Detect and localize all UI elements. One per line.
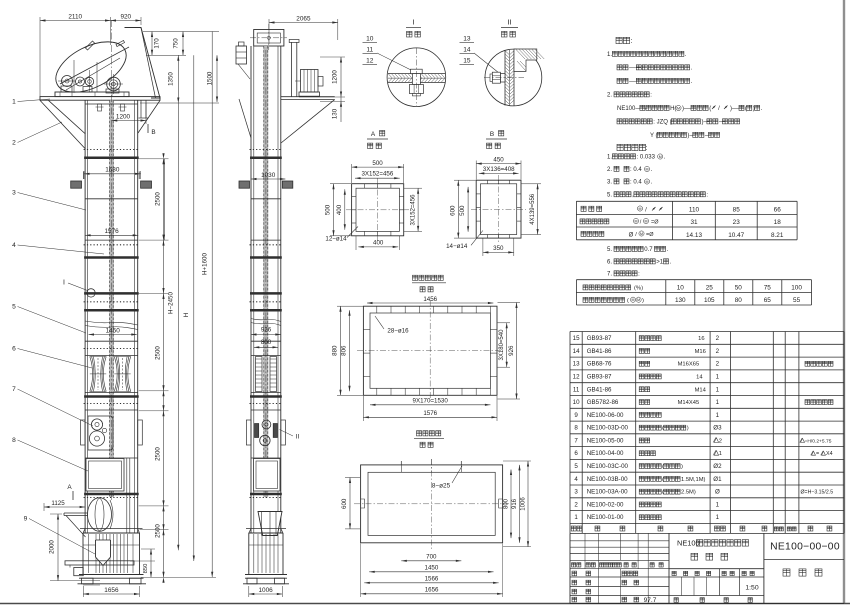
svg-text:NE100-03D-00: NE100-03D-00	[587, 425, 629, 432]
svg-text:6.: 6.	[607, 260, 612, 266]
svg-text:H(: H(	[670, 106, 676, 112]
svg-text:3.: 3.	[607, 180, 612, 186]
svg-text:1450: 1450	[106, 327, 121, 334]
svg-text:850: 850	[143, 564, 149, 574]
svg-text:14: 14	[573, 348, 580, 355]
svg-text:1030: 1030	[261, 172, 276, 179]
svg-text:M14: M14	[695, 387, 707, 393]
svg-text:750: 750	[173, 38, 180, 49]
svg-text:6: 6	[574, 450, 578, 457]
svg-text:1: 1	[716, 374, 720, 381]
svg-text:2065: 2065	[296, 15, 311, 22]
svg-text:55: 55	[793, 297, 801, 304]
svg-text:2000: 2000	[49, 540, 56, 554]
svg-text:: 0.4: : 0.4	[630, 180, 642, 186]
svg-text:12−ø14: 12−ø14	[325, 235, 347, 242]
svg-text:5: 5	[12, 304, 16, 311]
svg-text:1125: 1125	[51, 500, 65, 507]
svg-text:5: 5	[574, 463, 578, 470]
svg-text:M: M	[677, 106, 680, 110]
svg-text:1.: 1.	[607, 52, 612, 58]
svg-text:1: 1	[12, 99, 16, 106]
svg-text:28−ø16: 28−ø16	[387, 328, 409, 335]
svg-text:2.: 2.	[607, 93, 612, 99]
svg-text:—: —	[719, 120, 725, 126]
svg-text:1576: 1576	[423, 410, 437, 417]
svg-text:400: 400	[336, 204, 343, 215]
svg-text:)——: )——	[682, 106, 696, 112]
svg-text:2110: 2110	[68, 13, 82, 20]
svg-text:500: 500	[372, 160, 383, 167]
svg-text:NE100-06-00: NE100-06-00	[587, 412, 624, 419]
svg-text:2500: 2500	[154, 524, 161, 538]
svg-text:130: 130	[332, 108, 339, 119]
svg-text:NE100-01-00: NE100-01-00	[587, 514, 624, 521]
svg-text:M: M	[645, 219, 648, 223]
svg-text:: JZQ (: : JZQ (	[653, 120, 671, 126]
svg-text:2: 2	[716, 348, 720, 355]
svg-text:(: (	[627, 298, 629, 304]
svg-text:8−ø25: 8−ø25	[432, 483, 451, 490]
svg-text:X4: X4	[826, 451, 833, 457]
svg-text:)—: )—	[702, 120, 710, 126]
svg-text:——: ——	[629, 79, 641, 85]
svg-text:5.: 5.	[607, 192, 612, 198]
svg-text:3X152=456: 3X152=456	[411, 194, 417, 226]
svg-text:3: 3	[574, 489, 578, 496]
svg-text:=Ø: =Ø	[646, 232, 654, 238]
svg-text:Ø1: Ø1	[713, 476, 722, 483]
svg-text:M: M	[635, 219, 638, 223]
svg-text:1656: 1656	[104, 587, 119, 594]
svg-text:16: 16	[698, 336, 704, 342]
svg-text:Ø: Ø	[629, 233, 634, 239]
svg-text:13: 13	[573, 361, 580, 368]
svg-text:M: M	[632, 298, 635, 302]
svg-text:600: 600	[341, 498, 348, 509]
svg-text:1:50: 1:50	[745, 585, 758, 592]
svg-text:1450: 1450	[425, 564, 439, 571]
svg-text:75: 75	[764, 285, 772, 292]
svg-text:7: 7	[12, 386, 16, 393]
svg-text:700: 700	[426, 553, 437, 560]
svg-text:916: 916	[512, 498, 518, 509]
svg-text:1566: 1566	[425, 575, 439, 582]
svg-text:14.13: 14.13	[686, 232, 702, 239]
svg-text:GB93-87: GB93-87	[587, 335, 612, 342]
svg-text:2: 2	[719, 438, 722, 444]
svg-text:10.47: 10.47	[728, 232, 744, 239]
svg-text:14: 14	[463, 47, 471, 54]
svg-text:18: 18	[774, 219, 782, 226]
svg-text:): )	[681, 464, 683, 470]
svg-text:400: 400	[373, 240, 384, 247]
svg-text:GB5782-86: GB5782-86	[587, 399, 619, 406]
svg-text:II: II	[507, 18, 511, 27]
svg-text:10: 10	[573, 399, 580, 406]
svg-text:: 0.4: : 0.4	[630, 167, 642, 173]
svg-text:=: =	[816, 451, 819, 457]
svg-text:4: 4	[12, 242, 16, 249]
svg-text:Ø=H−3.15/2.5: Ø=H−3.15/2.5	[801, 490, 834, 496]
svg-text:4X139=556: 4X139=556	[530, 193, 536, 225]
svg-text:85: 85	[733, 207, 741, 214]
svg-text:H+1600: H+1600	[202, 253, 209, 275]
svg-text:GB41-86: GB41-86	[587, 386, 612, 393]
svg-text:9: 9	[24, 516, 28, 523]
svg-text:1200: 1200	[332, 70, 339, 84]
svg-text:13: 13	[463, 36, 471, 43]
svg-text:NE100-03C-00: NE100-03C-00	[587, 463, 629, 470]
svg-text:100: 100	[791, 285, 802, 292]
svg-text:23: 23	[733, 219, 741, 226]
svg-text:6: 6	[12, 346, 16, 353]
svg-text:NE100——: NE100——	[617, 106, 647, 112]
svg-text:2: 2	[12, 140, 16, 147]
svg-text:(: (	[709, 106, 711, 112]
svg-text:600: 600	[449, 205, 456, 216]
svg-text:50: 50	[735, 285, 743, 292]
svg-text:2500: 2500	[154, 346, 161, 360]
svg-text:130: 130	[675, 297, 686, 304]
svg-text:Ø3: Ø3	[713, 425, 722, 432]
svg-text:1006: 1006	[258, 587, 273, 594]
svg-text:806: 806	[341, 345, 348, 356]
svg-text:2: 2	[574, 501, 578, 508]
svg-text:M: M	[640, 232, 643, 236]
svg-text:1.5M,1M): 1.5M,1M)	[681, 477, 706, 483]
svg-text:0.7: 0.7	[644, 247, 653, 253]
svg-text:NE100-04-00: NE100-04-00	[587, 450, 624, 457]
svg-text:11: 11	[573, 386, 580, 393]
svg-text:I: I	[63, 280, 65, 287]
svg-text:5.: 5.	[607, 247, 612, 253]
svg-text:3X136=408: 3X136=408	[483, 166, 515, 173]
svg-text:1680: 1680	[105, 167, 120, 174]
svg-text:25: 25	[706, 285, 714, 292]
svg-text:M16X65: M16X65	[678, 362, 700, 368]
svg-text:1: 1	[574, 514, 578, 521]
svg-text:M: M	[639, 207, 642, 211]
svg-text:GB68-76: GB68-76	[587, 361, 612, 368]
svg-text:NE100-03A-00: NE100-03A-00	[587, 489, 628, 496]
svg-text:Ø2: Ø2	[713, 463, 722, 470]
svg-text:2: 2	[716, 361, 720, 368]
svg-text:3X152=456: 3X152=456	[361, 171, 393, 178]
svg-text:110: 110	[689, 207, 700, 214]
svg-text:(%): (%)	[634, 286, 643, 292]
svg-text:500: 500	[459, 205, 466, 216]
svg-text:II: II	[296, 434, 300, 441]
svg-text:A: A	[67, 484, 72, 491]
svg-text:9X170=1530: 9X170=1530	[413, 397, 449, 404]
svg-text:>1: >1	[656, 260, 664, 266]
svg-text:2500: 2500	[154, 192, 161, 206]
svg-text:31: 31	[690, 219, 698, 226]
svg-text:800: 800	[261, 339, 272, 346]
svg-text:1: 1	[716, 501, 720, 508]
svg-text:1: 1	[716, 514, 720, 521]
svg-text::: :	[646, 145, 648, 152]
svg-text:2: 2	[716, 335, 720, 342]
svg-text:1: 1	[716, 399, 720, 406]
svg-text:): )	[642, 298, 644, 304]
svg-text:1350: 1350	[168, 72, 175, 86]
svg-text:7: 7	[574, 437, 578, 444]
svg-text:H−2450: H−2450	[168, 292, 175, 314]
svg-text:926: 926	[261, 327, 272, 334]
svg-text:1456: 1456	[423, 296, 437, 303]
svg-text:)——: )——	[730, 106, 744, 112]
svg-text:M: M	[637, 298, 640, 302]
svg-text:1.: 1.	[607, 155, 612, 161]
svg-text:9: 9	[574, 412, 578, 419]
svg-text:7.: 7.	[607, 272, 612, 278]
svg-text:80: 80	[735, 297, 743, 304]
svg-text:65: 65	[764, 297, 772, 304]
svg-text:NE100-02-00: NE100-02-00	[587, 501, 624, 508]
svg-text:97.7: 97.7	[644, 597, 657, 604]
svg-text:170: 170	[154, 38, 161, 49]
svg-text:15: 15	[573, 335, 580, 342]
svg-text:GB41-86: GB41-86	[587, 348, 612, 355]
svg-text:NE100-03B-00: NE100-03B-00	[587, 476, 628, 483]
svg-text:I: I	[413, 18, 415, 27]
svg-text:—: —	[705, 133, 711, 139]
svg-text:350: 350	[493, 245, 504, 252]
svg-text:66: 66	[774, 207, 782, 214]
svg-text:1006: 1006	[521, 497, 527, 511]
svg-text:1: 1	[716, 412, 720, 419]
svg-text:920: 920	[120, 13, 131, 20]
svg-text:3X180=540: 3X180=540	[499, 329, 505, 361]
svg-text:800: 800	[503, 498, 509, 509]
svg-text:M: M	[646, 180, 649, 184]
svg-text:12: 12	[366, 58, 374, 65]
svg-text::: :	[631, 38, 633, 45]
svg-text:12: 12	[573, 374, 580, 381]
svg-text:11: 11	[366, 47, 373, 54]
svg-text:H: H	[183, 313, 190, 317]
svg-text:500: 500	[325, 204, 332, 215]
svg-text:105: 105	[704, 297, 715, 304]
svg-text:: 0.033: : 0.033	[637, 155, 656, 161]
svg-text:1: 1	[719, 451, 722, 457]
svg-text:NE100-05-00: NE100-05-00	[587, 437, 624, 444]
svg-text:)—: )—	[687, 133, 695, 139]
svg-text:2.5M): 2.5M)	[681, 490, 696, 496]
svg-text:10: 10	[366, 36, 374, 43]
svg-text:8: 8	[574, 425, 578, 432]
svg-text:10: 10	[677, 285, 685, 292]
svg-text:NE100−00−00: NE100−00−00	[770, 541, 840, 552]
svg-text:GB93-87: GB93-87	[587, 374, 612, 381]
svg-text:926: 926	[508, 345, 515, 356]
svg-text:A: A	[371, 131, 376, 138]
svg-text:M14X45: M14X45	[678, 400, 700, 406]
svg-text:4: 4	[574, 476, 578, 483]
svg-text:1200: 1200	[116, 113, 131, 120]
svg-text:1: 1	[716, 386, 720, 393]
svg-text:1656: 1656	[425, 586, 439, 593]
svg-text:8.21: 8.21	[771, 232, 784, 239]
svg-text:=H/0.2+5.75: =H/0.2+5.75	[805, 438, 832, 444]
svg-text:Ø: Ø	[715, 489, 720, 496]
svg-text:3: 3	[12, 190, 16, 197]
svg-text:——: ——	[629, 66, 641, 72]
svg-text:880: 880	[332, 345, 339, 356]
svg-text:2.: 2.	[607, 167, 612, 173]
svg-text:450: 450	[493, 156, 504, 163]
svg-text:M: M	[659, 155, 662, 159]
svg-text:=Ø: =Ø	[651, 220, 659, 226]
svg-text:M: M	[646, 167, 649, 171]
svg-text:M16: M16	[695, 349, 706, 355]
svg-text:B: B	[490, 131, 494, 138]
svg-text:B: B	[151, 129, 155, 136]
svg-text:8: 8	[12, 437, 16, 444]
svg-text:15: 15	[463, 58, 471, 65]
svg-text:Y (: Y (	[650, 133, 658, 139]
svg-text:14: 14	[696, 375, 703, 381]
svg-text:14−ø14: 14−ø14	[446, 243, 468, 250]
svg-text:): )	[687, 426, 689, 432]
svg-text:2500: 2500	[154, 447, 161, 461]
svg-text:1576: 1576	[104, 228, 119, 235]
